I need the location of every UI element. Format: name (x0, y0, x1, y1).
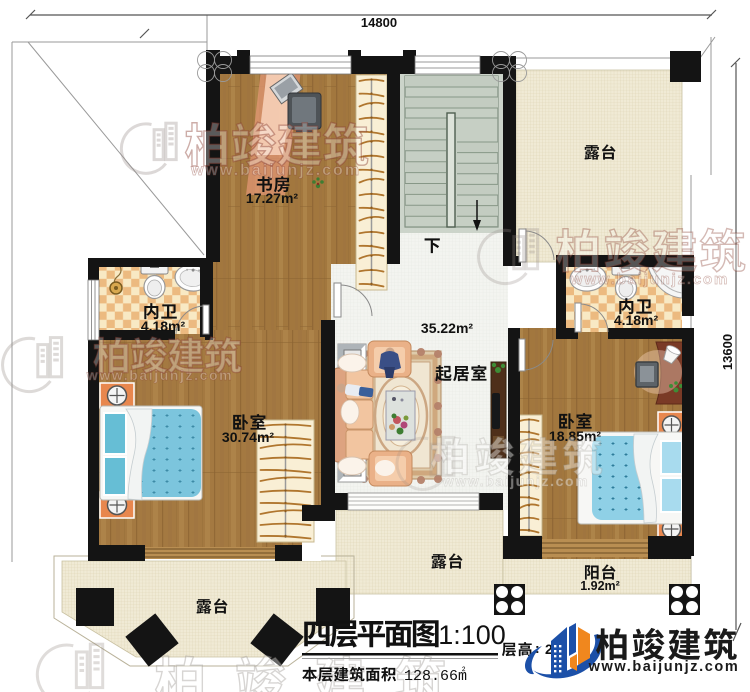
svg-text:35.22m²: 35.22m² (421, 320, 473, 336)
svg-text:www.baijunjz.com: www.baijunjz.com (86, 367, 233, 383)
svg-text:www.baijunjz.com: www.baijunjz.com (442, 473, 589, 489)
svg-text:30.74m²: 30.74m² (222, 429, 274, 445)
svg-text:17.27m²: 17.27m² (246, 190, 298, 206)
svg-text:128.66m: 128.66m (404, 668, 467, 685)
svg-text:4.18m²: 4.18m² (614, 312, 659, 328)
svg-text:1.92m²: 1.92m² (580, 579, 620, 593)
svg-text:1:100: 1:100 (438, 620, 506, 650)
svg-text:14800: 14800 (361, 15, 397, 30)
svg-text:4.18m²: 4.18m² (141, 318, 186, 334)
svg-text:www.baijunjz.com: www.baijunjz.com (570, 271, 729, 288)
svg-text::: : (392, 666, 397, 682)
svg-text:www.baijunjz.com: www.baijunjz.com (190, 162, 361, 179)
svg-text:13600: 13600 (720, 334, 735, 370)
svg-text:www.baijunjz.com: www.baijunjz.com (588, 659, 740, 675)
